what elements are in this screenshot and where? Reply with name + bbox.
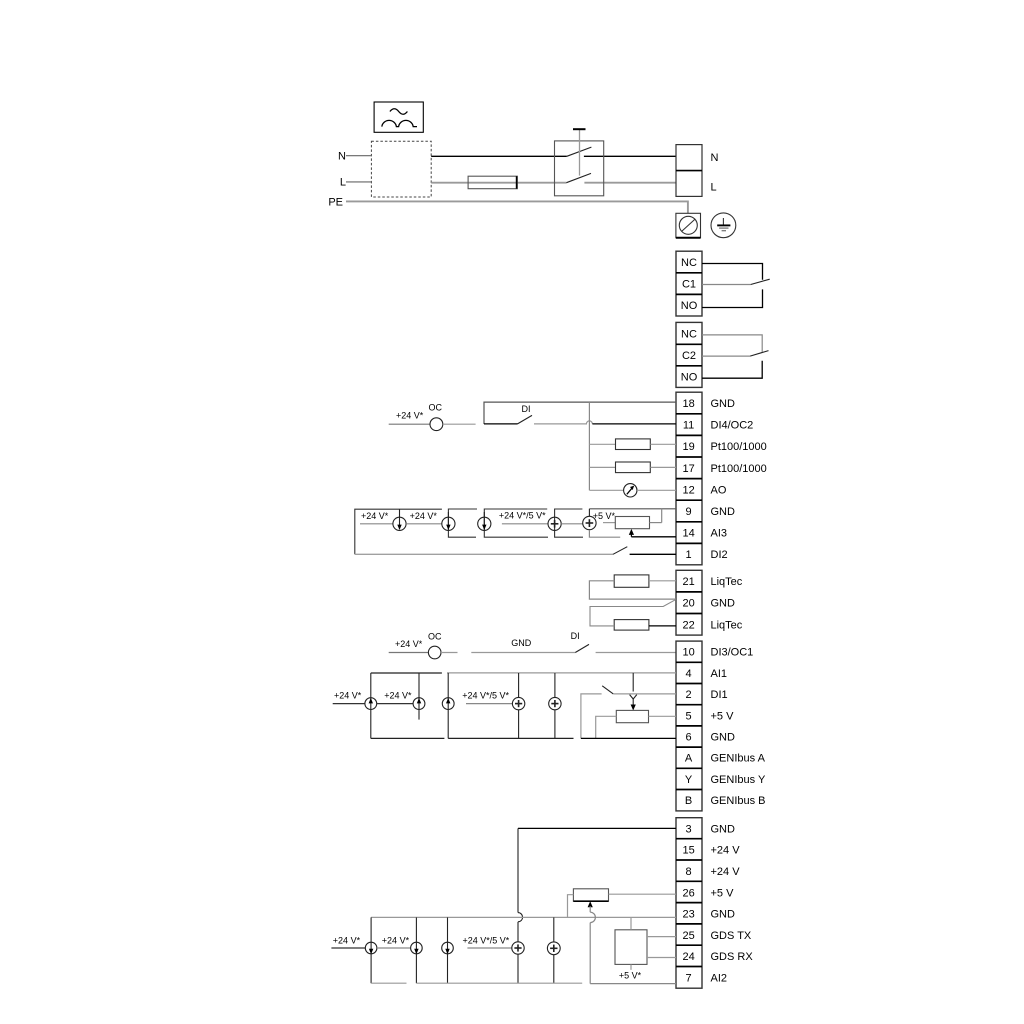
svg-text:7: 7 xyxy=(686,973,692,985)
svg-text:GND: GND xyxy=(711,823,736,835)
svg-text:+24 V*/5 V*: +24 V*/5 V* xyxy=(463,936,510,946)
svg-text:L: L xyxy=(711,182,717,194)
svg-text:C1: C1 xyxy=(682,279,696,291)
svg-text:+24 V: +24 V xyxy=(711,845,741,857)
svg-text:11: 11 xyxy=(683,420,694,432)
svg-text:+24 V*: +24 V* xyxy=(395,639,423,649)
svg-text:GENIbus B: GENIbus B xyxy=(711,795,766,807)
svg-text:14: 14 xyxy=(682,528,694,540)
svg-text:+24 V*: +24 V* xyxy=(384,690,412,700)
svg-text:OC: OC xyxy=(428,632,442,642)
svg-text:12: 12 xyxy=(682,484,694,496)
svg-text:+5 V: +5 V xyxy=(711,710,735,722)
svg-text:+24 V*/5 V*: +24 V*/5 V* xyxy=(499,511,546,521)
svg-text:+24 V*: +24 V* xyxy=(334,690,362,700)
svg-text:+5 V*: +5 V* xyxy=(593,511,616,521)
svg-text:DI1: DI1 xyxy=(711,689,728,701)
svg-text:9: 9 xyxy=(686,506,692,518)
svg-text:NO: NO xyxy=(681,300,698,312)
svg-text:18: 18 xyxy=(682,398,694,410)
svg-text:AI3: AI3 xyxy=(711,528,728,540)
svg-text:+24 V*: +24 V* xyxy=(361,511,389,521)
svg-text:GND: GND xyxy=(511,638,532,648)
svg-text:A: A xyxy=(685,753,693,765)
svg-text:8: 8 xyxy=(686,866,692,878)
svg-text:+5 V: +5 V xyxy=(711,887,735,899)
svg-text:23: 23 xyxy=(682,909,694,921)
svg-text:+24 V*: +24 V* xyxy=(396,411,424,421)
svg-text:AI1: AI1 xyxy=(711,668,728,680)
svg-text:GND: GND xyxy=(711,506,736,518)
svg-text:GENIbus Y: GENIbus Y xyxy=(711,774,766,786)
svg-text:GENIbus A: GENIbus A xyxy=(711,753,766,765)
svg-text:2: 2 xyxy=(686,689,692,701)
svg-text:+24 V*/5 V*: +24 V*/5 V* xyxy=(462,690,509,700)
svg-text:19: 19 xyxy=(682,441,694,453)
svg-text:PE: PE xyxy=(328,197,343,209)
svg-text:NO: NO xyxy=(681,372,698,384)
svg-text:Pt100/1000: Pt100/1000 xyxy=(711,441,767,453)
svg-text:GND: GND xyxy=(711,398,736,410)
svg-text:NC: NC xyxy=(681,328,697,340)
svg-text:GND: GND xyxy=(711,732,736,744)
svg-text:NC: NC xyxy=(681,257,697,269)
svg-text:10: 10 xyxy=(682,647,694,659)
svg-text:+24 V*: +24 V* xyxy=(333,936,361,946)
svg-text:N: N xyxy=(338,151,346,163)
svg-text:17: 17 xyxy=(682,463,694,475)
svg-text:DI2: DI2 xyxy=(711,549,728,561)
svg-text:GDS TX: GDS TX xyxy=(711,930,752,942)
svg-text:3: 3 xyxy=(686,823,692,835)
svg-text:5: 5 xyxy=(686,710,692,722)
svg-text:22: 22 xyxy=(682,619,694,631)
svg-text:N: N xyxy=(711,152,719,164)
svg-text:+5 V*: +5 V* xyxy=(619,970,642,980)
svg-text:15: 15 xyxy=(682,845,694,857)
svg-text:Pt100/1000: Pt100/1000 xyxy=(711,463,767,475)
svg-text:B: B xyxy=(685,795,692,807)
svg-text:AI2: AI2 xyxy=(711,973,728,985)
svg-text:1: 1 xyxy=(686,549,692,561)
svg-text:AO: AO xyxy=(711,484,727,496)
svg-text:25: 25 xyxy=(682,930,694,942)
svg-text:OC: OC xyxy=(429,403,443,413)
svg-text:DI: DI xyxy=(522,404,531,414)
svg-text:DI4/OC2: DI4/OC2 xyxy=(711,420,754,432)
svg-text:20: 20 xyxy=(682,598,694,610)
svg-text:Y: Y xyxy=(685,774,693,786)
svg-text:C2: C2 xyxy=(682,350,696,362)
svg-text:GND: GND xyxy=(711,909,736,921)
svg-text:DI: DI xyxy=(571,631,580,641)
svg-text:+24 V*: +24 V* xyxy=(410,511,438,521)
svg-text:GND: GND xyxy=(711,598,736,610)
svg-text:6: 6 xyxy=(686,732,692,744)
svg-text:L: L xyxy=(340,177,346,189)
svg-text:GDS RX: GDS RX xyxy=(711,951,754,963)
svg-text:4: 4 xyxy=(686,668,692,680)
svg-text:26: 26 xyxy=(682,887,694,899)
svg-text:24: 24 xyxy=(682,951,694,963)
svg-text:+24 V: +24 V xyxy=(711,866,741,878)
svg-text:DI3/OC1: DI3/OC1 xyxy=(711,647,754,659)
svg-text:LiqTec: LiqTec xyxy=(711,619,743,631)
svg-text:+24 V*: +24 V* xyxy=(382,936,410,946)
svg-text:21: 21 xyxy=(682,576,694,588)
svg-text:LiqTec: LiqTec xyxy=(711,576,743,588)
